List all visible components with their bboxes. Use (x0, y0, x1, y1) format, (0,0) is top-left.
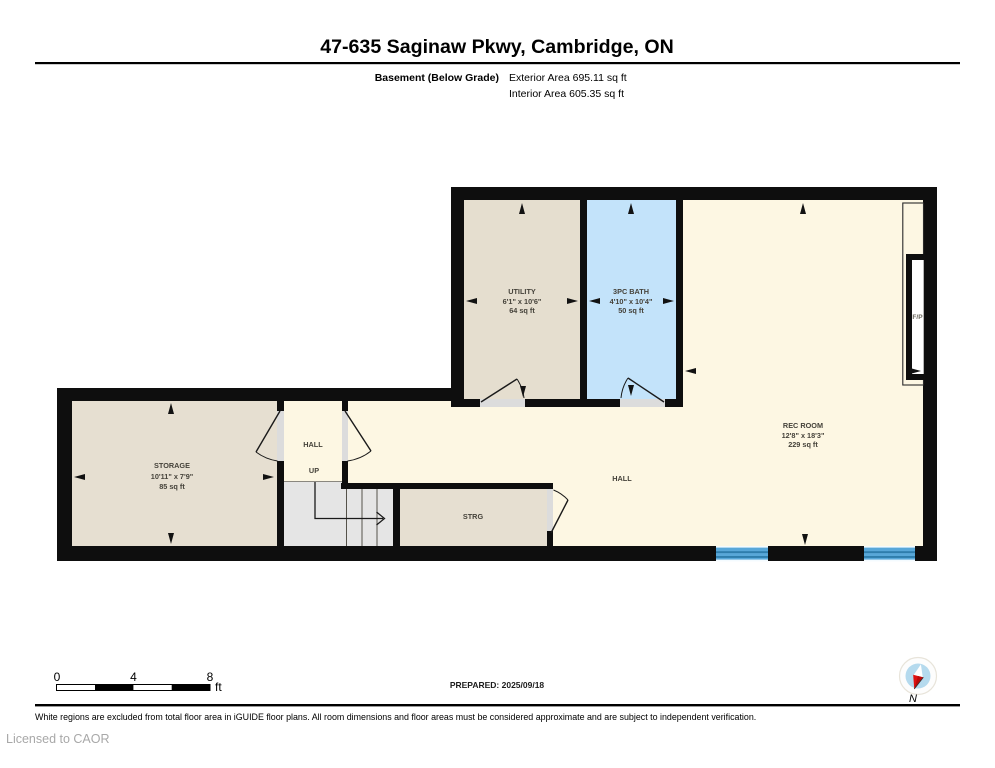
svg-text:STORAGE: STORAGE (154, 461, 190, 470)
svg-text:Interior Area 605.35 sq ft: Interior Area 605.35 sq ft (509, 88, 624, 100)
svg-text:12'8" x 18'3": 12'8" x 18'3" (782, 431, 825, 440)
svg-text:50 sq ft: 50 sq ft (618, 306, 644, 315)
svg-text:64 sq ft: 64 sq ft (509, 306, 535, 315)
svg-text:STRG: STRG (463, 512, 484, 521)
svg-text:HALL: HALL (303, 440, 323, 449)
svg-text:Exterior Area 695.11 sq ft: Exterior Area 695.11 sq ft (509, 72, 627, 84)
svg-text:229 sq ft: 229 sq ft (788, 440, 818, 449)
svg-text:F/P: F/P (912, 314, 923, 321)
svg-text:10'11" x 7'9": 10'11" x 7'9" (151, 472, 193, 481)
svg-text:85 sq ft: 85 sq ft (159, 482, 185, 491)
svg-text:4'10" x 10'4": 4'10" x 10'4" (610, 297, 653, 306)
svg-text:0: 0 (54, 670, 61, 684)
svg-text:PREPARED: 2025/09/18: PREPARED: 2025/09/18 (450, 680, 545, 690)
svg-text:UTILITY: UTILITY (508, 287, 536, 296)
svg-text:ft: ft (215, 680, 222, 694)
svg-text:HALL: HALL (612, 474, 632, 483)
svg-text:3PC BATH: 3PC BATH (613, 287, 649, 296)
svg-text:White regions are excluded fro: White regions are excluded from total fl… (35, 712, 756, 722)
svg-text:Basement (Below Grade): Basement (Below Grade) (375, 72, 499, 84)
svg-text:N: N (909, 693, 917, 705)
svg-text:47-635 Saginaw Pkwy, Cambridge: 47-635 Saginaw Pkwy, Cambridge, ON (320, 36, 674, 58)
svg-text:REC ROOM: REC ROOM (783, 421, 823, 430)
svg-text:Licensed to CAOR: Licensed to CAOR (6, 732, 110, 746)
svg-text:4: 4 (130, 670, 137, 684)
svg-text:UP: UP (309, 466, 319, 475)
svg-text:6'1" x 10'6": 6'1" x 10'6" (503, 297, 542, 306)
svg-text:8: 8 (207, 670, 214, 684)
